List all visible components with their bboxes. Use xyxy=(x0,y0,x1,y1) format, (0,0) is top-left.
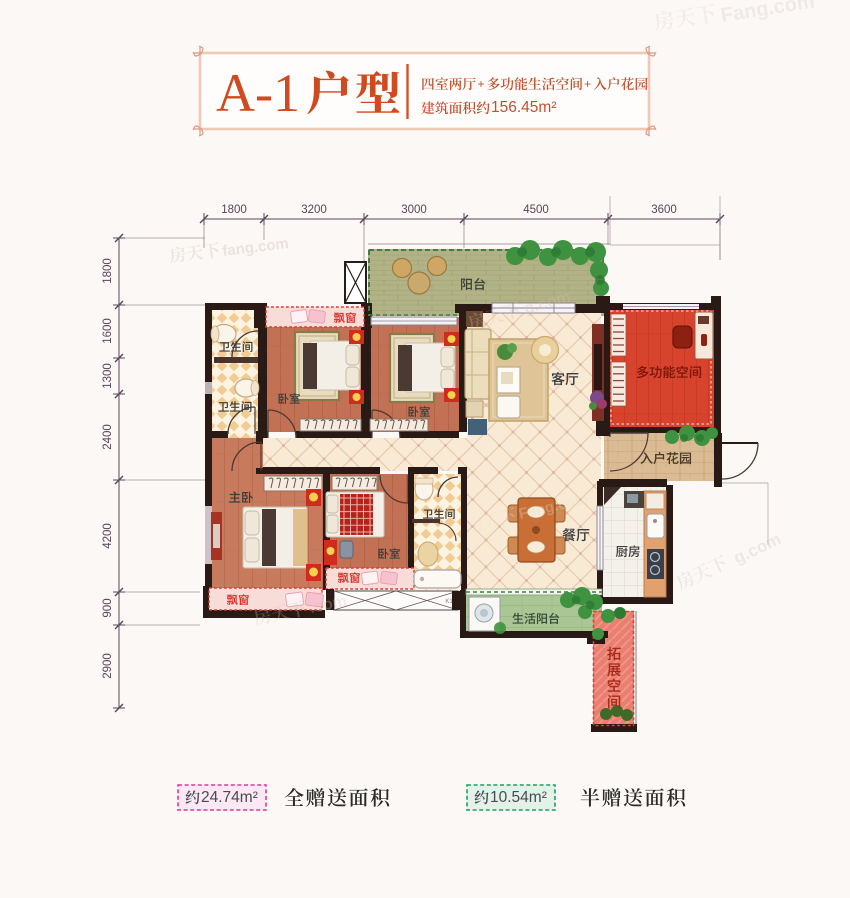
svg-text:1800: 1800 xyxy=(102,258,114,284)
svg-text:156.45m²: 156.45m² xyxy=(491,99,556,116)
svg-text:4200: 4200 xyxy=(102,523,114,549)
svg-text:900: 900 xyxy=(102,598,114,617)
svg-text:3600: 3600 xyxy=(651,204,677,216)
svg-text:2900: 2900 xyxy=(102,653,114,679)
svg-text:24.74m²: 24.74m² xyxy=(201,789,258,806)
svg-text:3000: 3000 xyxy=(401,204,427,216)
svg-text:A-1: A-1 xyxy=(216,63,300,123)
svg-text:+: + xyxy=(478,77,485,91)
svg-text:1800: 1800 xyxy=(221,204,247,216)
svg-text:K1: K1 xyxy=(445,599,453,605)
svg-text:1600: 1600 xyxy=(102,318,114,344)
svg-text:1300: 1300 xyxy=(102,363,114,389)
svg-text:10.54m²: 10.54m² xyxy=(490,789,547,806)
svg-text:+: + xyxy=(584,77,591,91)
svg-text:3200: 3200 xyxy=(301,204,327,216)
svg-text:4500: 4500 xyxy=(523,204,549,216)
svg-text:2400: 2400 xyxy=(102,424,114,450)
